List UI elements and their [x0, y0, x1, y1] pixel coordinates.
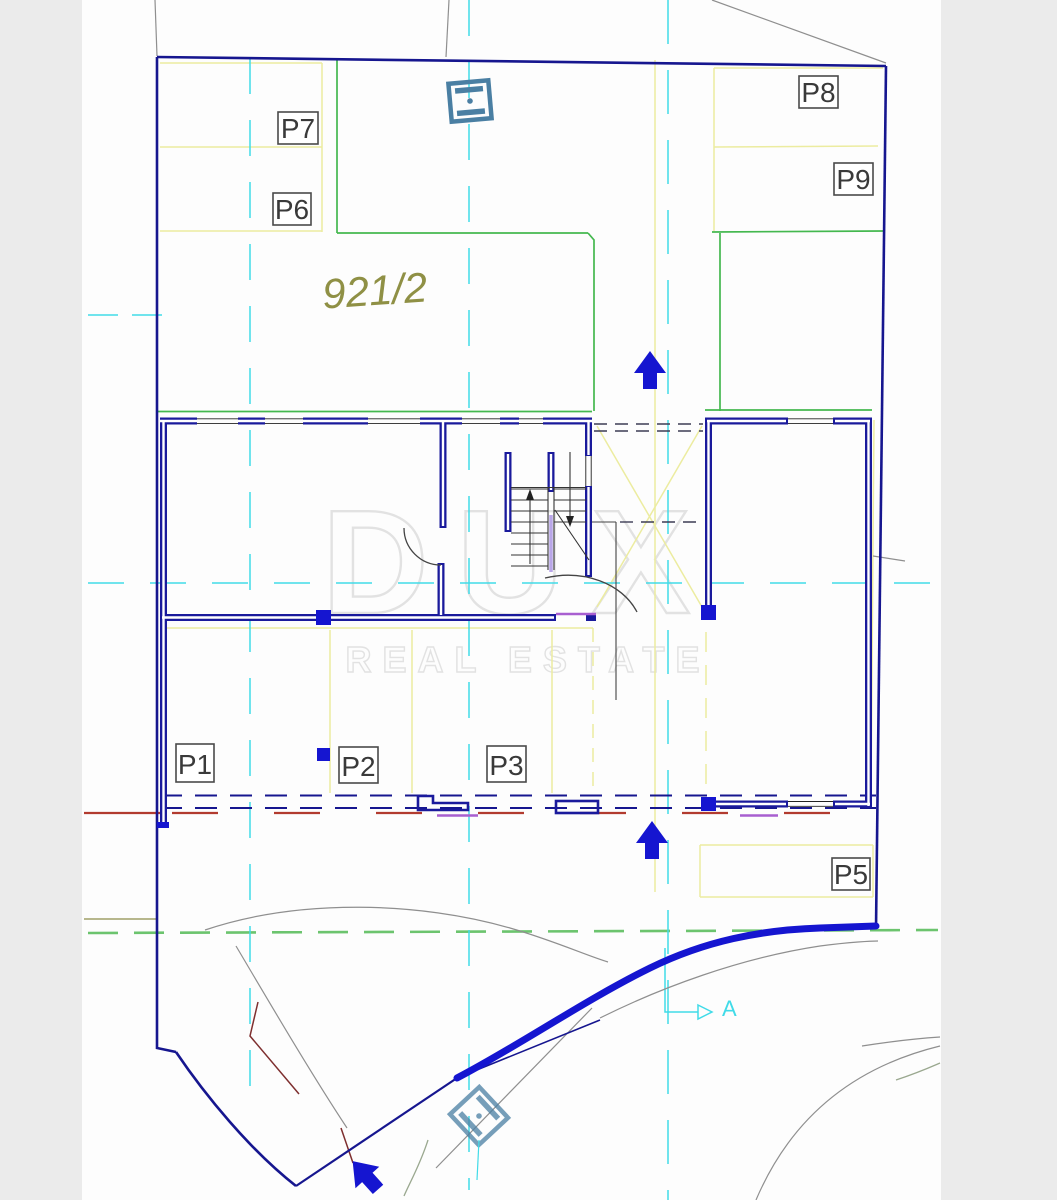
- watermark-tagline: REAL ESTATE: [345, 639, 710, 680]
- parking-spot-label-p1: P1: [176, 744, 214, 782]
- svg-text:P3: P3: [489, 750, 523, 781]
- svg-text:P6: P6: [275, 194, 309, 225]
- parking-spot-label-p7: P7: [278, 112, 318, 144]
- svg-text:P7: P7: [281, 113, 315, 144]
- site-plan-drawing: DUX REAL ESTATE: [0, 0, 1057, 1200]
- svg-text:P5: P5: [834, 859, 868, 890]
- parking-spot-label-p6: P6: [273, 193, 311, 225]
- parking-spot-label-p8: P8: [799, 76, 838, 108]
- parcel-number: 921/2: [321, 263, 429, 317]
- section-label: A: [722, 996, 737, 1021]
- parking-spot-label-p2: P2: [339, 747, 378, 783]
- parking-spot-label-p5: P5: [832, 858, 870, 890]
- site-plan-canvas: DUX REAL ESTATE: [0, 0, 1057, 1200]
- watermark: DUX REAL ESTATE: [322, 480, 718, 680]
- parking-spot-label-p3: P3: [487, 746, 526, 782]
- svg-text:P9: P9: [836, 164, 870, 195]
- parking-spot-label-p9: P9: [834, 163, 873, 195]
- svg-text:P2: P2: [341, 751, 375, 782]
- svg-text:P8: P8: [801, 77, 835, 108]
- svg-text:P1: P1: [178, 749, 212, 780]
